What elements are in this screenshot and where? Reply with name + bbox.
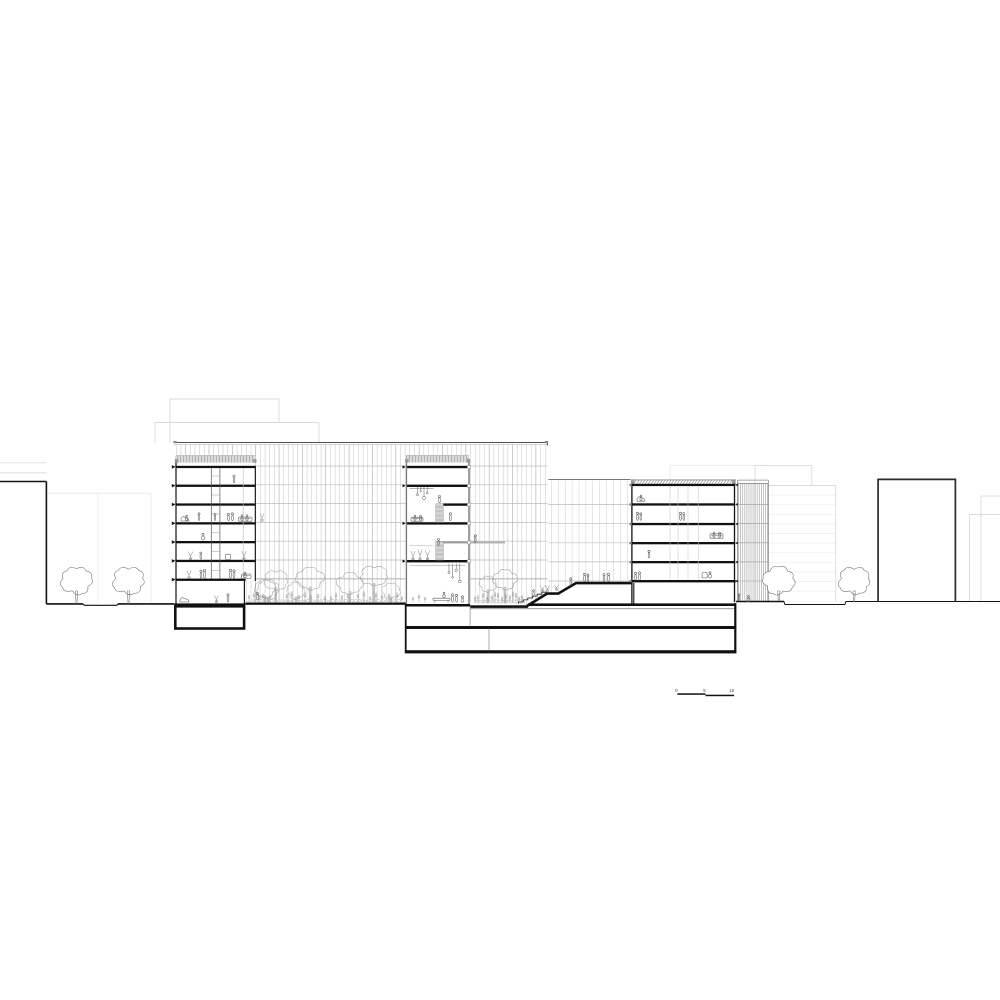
svg-text:10: 10	[729, 688, 734, 693]
